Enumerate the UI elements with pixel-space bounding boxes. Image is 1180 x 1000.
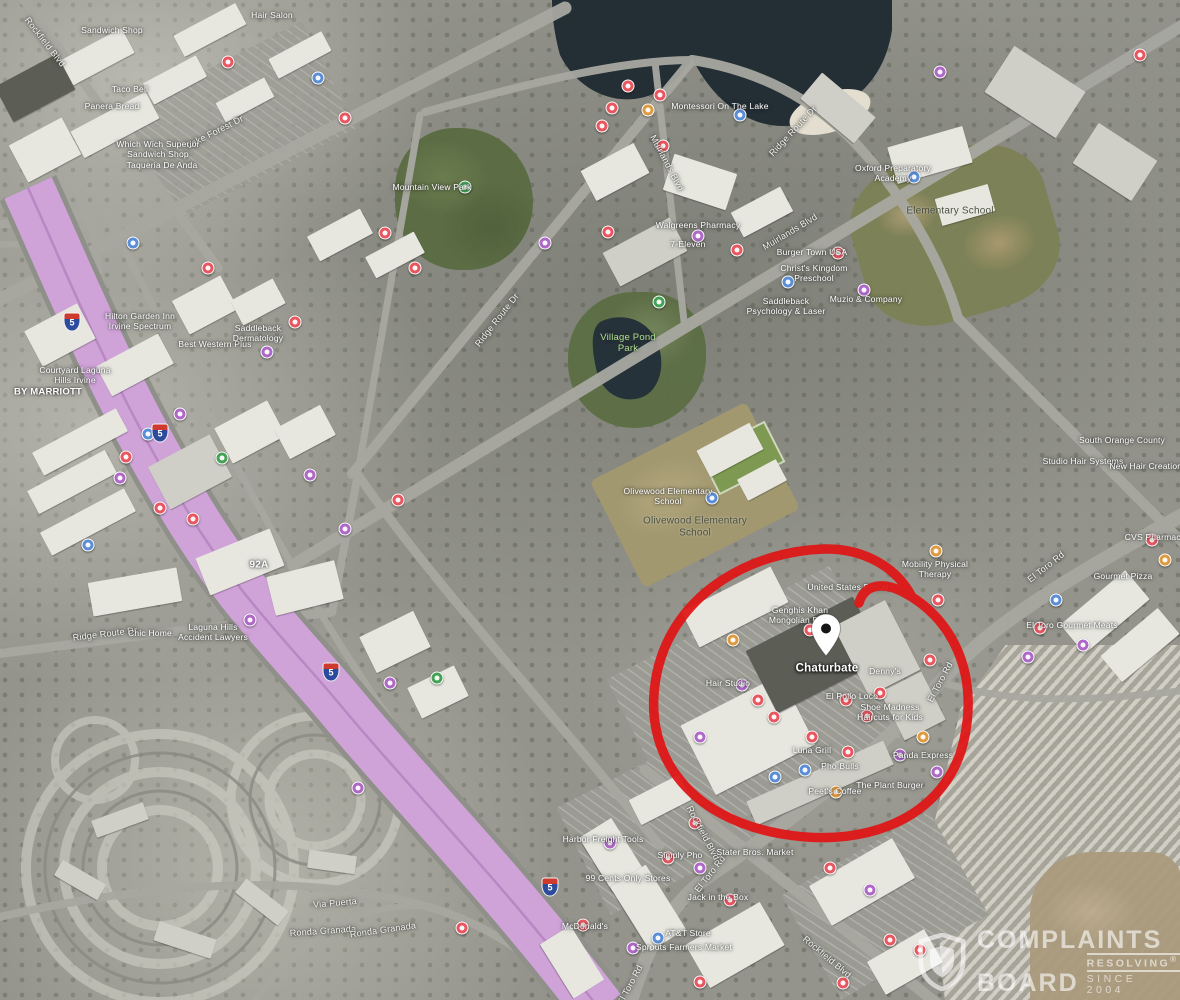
poi-label[interactable]: Taqueria De Anda [127,161,198,171]
poi-label[interactable]: El Pollo Loco [826,692,878,702]
poi-marker[interactable] [339,112,352,125]
poi-label: Elementary School [906,205,993,217]
watermark-line1: COMPLAINTS [977,928,1180,953]
poi-label[interactable]: Chic Home [128,629,172,639]
poi-marker[interactable] [752,694,765,707]
poi-marker[interactable] [731,244,744,257]
poi-label[interactable]: Hair Salon [251,11,293,21]
poi-label[interactable]: Sprouts Farmers Market [636,943,732,953]
poi-label[interactable]: The Plant Burger [856,781,923,791]
poi-marker[interactable] [694,731,707,744]
poi-label[interactable]: BY MARRIOTT [14,388,82,399]
poi-marker[interactable] [1077,639,1090,652]
poi-marker[interactable] [768,711,781,724]
poi-marker[interactable] [799,764,812,777]
poi-label[interactable]: Shoe Madness Haircuts for Kids [857,703,923,723]
poi-label[interactable]: CVS Pharmacy [1125,533,1180,543]
poi-marker[interactable] [864,884,877,897]
poi-label[interactable]: Panera Bread [85,102,140,112]
poi-marker[interactable] [932,594,945,607]
poi-marker[interactable] [642,104,655,117]
watermark-since: SINCE 2004 [1087,974,1180,995]
poi-label[interactable]: Sandwich Shop [81,26,143,36]
poi-label[interactable]: Mobility Physical Therapy [902,560,968,580]
poi-marker[interactable] [931,766,944,779]
poi-marker[interactable] [596,120,609,133]
poi-marker[interactable] [1022,651,1035,664]
poi-label[interactable]: Peet's Coffee [808,787,861,797]
poi-marker[interactable] [384,677,397,690]
watermark-line2: BOARD [977,971,1079,996]
poi-marker[interactable] [304,469,317,482]
poi-marker[interactable] [606,102,619,115]
poi-label[interactable]: Gourmet Pizza [1094,572,1153,582]
poi-label[interactable]: Oxford Preparatory Academy [855,164,931,184]
watermark-resolving: RESOLVING® [1087,953,1180,972]
poi-label[interactable]: Courtyard Laguna Hills Irvine [39,366,110,386]
poi-marker[interactable] [1050,594,1063,607]
poi-marker[interactable] [824,862,837,875]
poi-label: Olivewood Elementary School [643,516,747,539]
poi-label[interactable]: United States Postal [807,583,888,593]
poi-label[interactable]: Panda Express [893,751,953,761]
poi-marker[interactable] [539,237,552,250]
poi-label[interactable]: South Orange County [1079,436,1165,446]
poi-marker[interactable] [934,66,947,79]
poi-marker[interactable] [1134,49,1147,62]
poi-marker[interactable] [884,934,897,947]
poi-marker[interactable] [654,89,667,102]
poi-label[interactable]: AT&T Store [665,929,711,939]
park-label: Village Pond Park [600,333,656,355]
poi-label[interactable]: Harbor Freight Tools [563,835,644,845]
poi-label[interactable]: 99 Cents Only Stores [586,874,671,884]
poi-label[interactable]: Luna Grill [793,746,831,756]
poi-marker[interactable] [806,731,819,744]
poi-marker[interactable] [602,226,615,239]
poi-label[interactable]: Olivewood Elementary School [623,487,712,507]
poi-marker[interactable] [1159,554,1172,567]
poi-marker[interactable] [842,746,855,759]
poi-marker[interactable] [174,408,187,421]
poi-label[interactable]: Mountain View Park [392,183,471,193]
exit-label: 92A [250,559,269,571]
poi-marker[interactable] [289,316,302,329]
complaintsboard-watermark: COMPLAINTS BOARD RESOLVING® SINCE 2004 [916,928,1180,996]
poi-marker[interactable] [154,502,167,515]
poi-label[interactable]: Burger Town USA [777,248,847,258]
poi-marker[interactable] [653,296,666,309]
poi-label[interactable]: Taco Bell [112,85,148,95]
poi-label[interactable]: Walgreens Pharmacy [656,221,741,231]
poi-label[interactable]: Which Wich Superior Sandwich Shop [116,140,199,160]
poi-marker[interactable] [222,56,235,69]
shield-icon [916,933,968,991]
poi-marker[interactable] [312,72,325,85]
poi-label[interactable]: Pho Bulls [821,762,859,772]
poi-marker[interactable] [392,494,405,507]
poi-marker[interactable] [352,782,365,795]
poi-marker[interactable] [187,513,200,526]
poi-label[interactable]: Saddleback Dermatology [233,324,283,344]
poi-label[interactable]: New Hair Creations [1109,462,1180,472]
poi-marker[interactable] [127,237,140,250]
poi-label[interactable]: Saddleback Psychology & Laser [747,297,826,317]
poi-marker[interactable] [114,472,127,485]
poi-marker[interactable] [622,80,635,93]
poi-marker[interactable] [216,452,229,465]
poi-label[interactable]: Simply Pho [658,851,703,861]
poi-label[interactable]: Hair Studio [706,679,750,689]
poi-marker[interactable] [694,976,707,989]
poi-label[interactable]: Denny's [869,667,901,677]
poi-marker[interactable] [261,346,274,359]
poi-label[interactable]: Laguna Hills Accident Lawyers [178,623,248,643]
poi-label[interactable]: Hilton Garden Inn Irvine Spectrum [105,312,175,332]
poi-label[interactable]: Jack in the Box [688,893,749,903]
poi-label[interactable]: Muzio & Company [830,295,902,305]
map-pin[interactable] [808,612,844,660]
poi-marker[interactable] [924,654,937,667]
poi-label[interactable]: McDonald's [562,922,608,932]
poi-marker[interactable] [409,262,422,275]
satellite-map: 5555Rockfield BlvdLake Forest DrRidge Ro… [0,0,1180,1000]
poi-marker[interactable] [769,771,782,784]
pin-label[interactable]: Chaturbate [796,662,859,675]
poi-marker[interactable] [431,672,444,685]
poi-marker[interactable] [82,539,95,552]
poi-label[interactable]: Montessori On The Lake [671,102,768,112]
poi-marker[interactable] [339,523,352,536]
poi-marker[interactable] [930,545,943,558]
poi-marker[interactable] [727,634,740,647]
poi-marker[interactable] [917,731,930,744]
poi-label[interactable]: El Toro Gourmet Meats [1026,621,1117,631]
poi-marker[interactable] [120,451,133,464]
poi-label[interactable]: Christ's Kingdom Preschool [780,264,847,284]
poi-marker[interactable] [456,922,469,935]
poi-marker[interactable] [379,227,392,240]
poi-marker[interactable] [202,262,215,275]
poi-label[interactable]: 7-Eleven [670,240,705,250]
poi-label[interactable]: Stater Bros. Market [716,848,793,858]
